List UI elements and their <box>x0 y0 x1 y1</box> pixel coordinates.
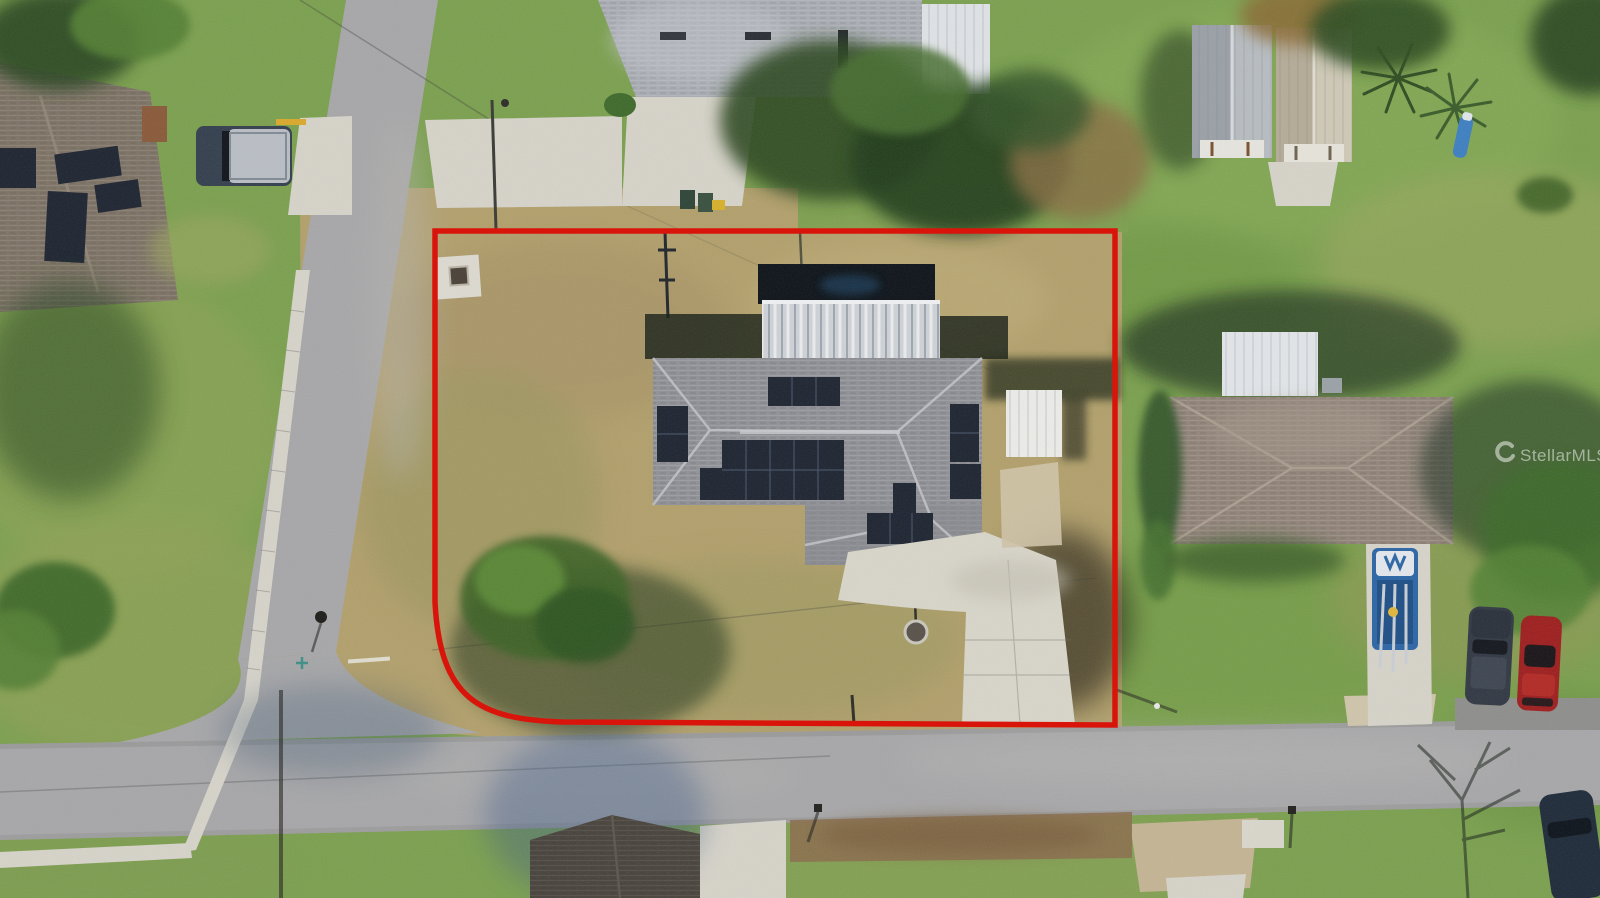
aerial-photo: StellarMLS <box>0 0 1600 898</box>
watermark-text: StellarMLS <box>1520 446 1600 465</box>
photo-grain <box>0 0 1600 898</box>
aerial-photo-canvas: StellarMLS <box>0 0 1600 898</box>
